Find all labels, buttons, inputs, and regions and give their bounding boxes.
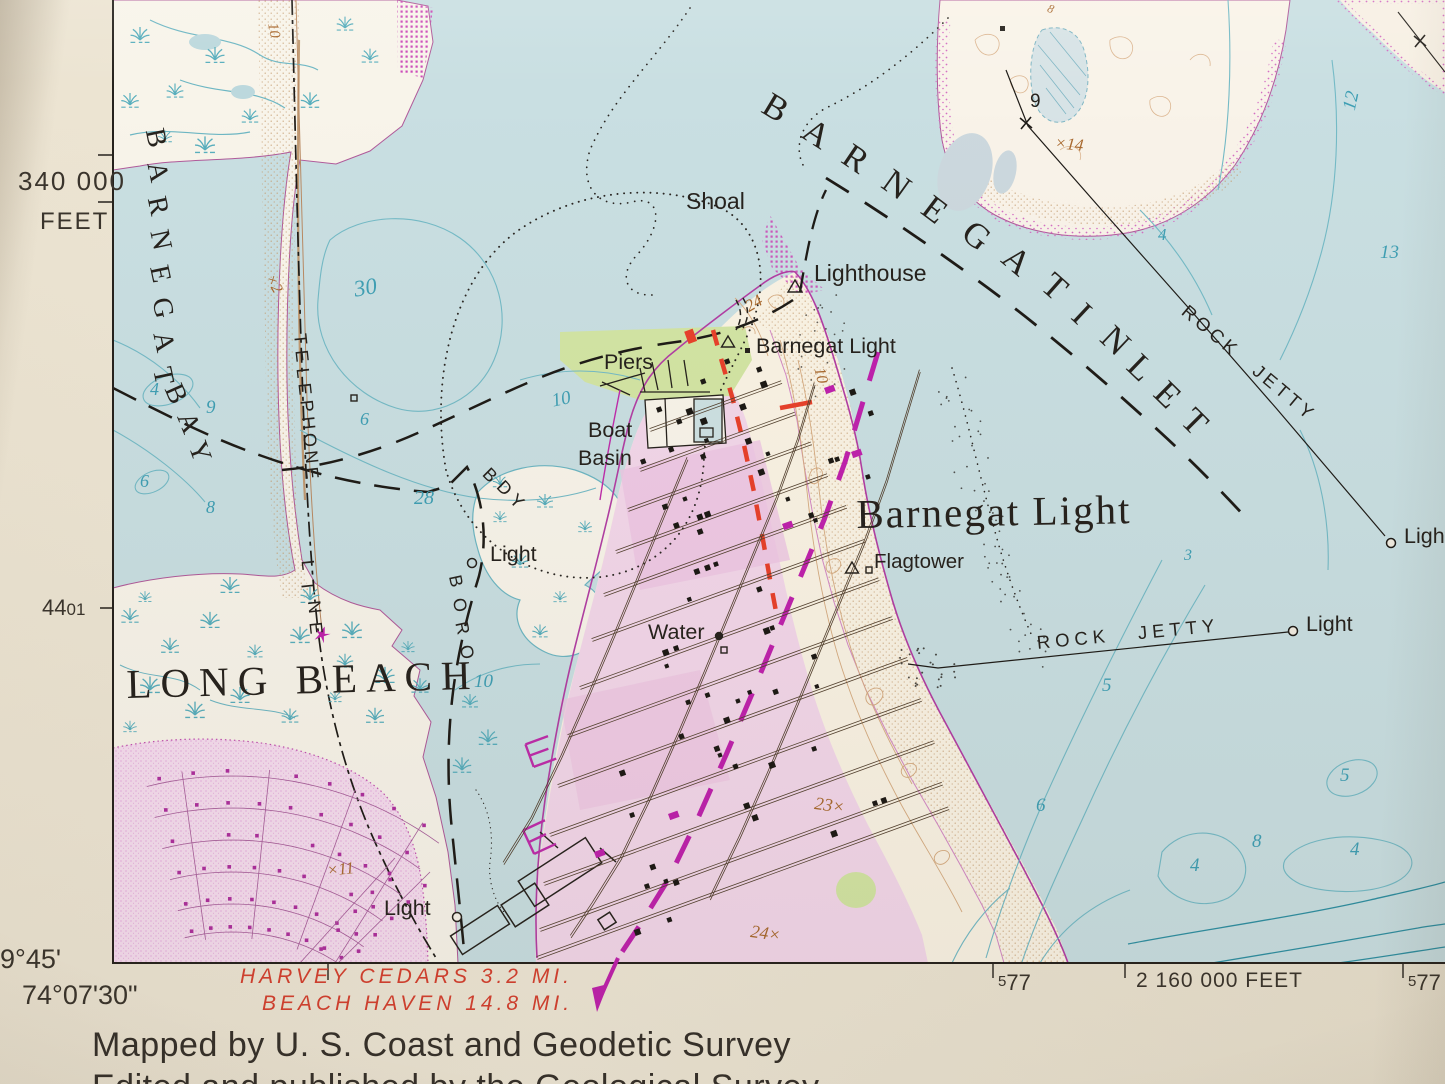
- depth-10a: 10: [550, 388, 573, 411]
- arc-letter: B: [140, 126, 171, 150]
- arc-letter: N: [876, 162, 917, 205]
- arc-letter: N: [302, 449, 321, 464]
- contour-24: 24: [742, 292, 765, 315]
- depth-3: 3: [1184, 548, 1192, 564]
- arc-letter: P: [297, 399, 316, 413]
- label-light-2: Light: [1306, 614, 1353, 636]
- label-barnegat-light-town: Barnegat Light: [856, 489, 1132, 535]
- depth-5b: 5: [1340, 766, 1350, 785]
- arc-letter: G: [956, 213, 998, 256]
- arc-letter: A: [996, 239, 1038, 282]
- longitude-label: 74°07'30": [22, 982, 138, 1009]
- arc-letter: I: [1066, 297, 1098, 331]
- arc-letter: A: [148, 329, 180, 355]
- depth-8b: 8: [1252, 832, 1262, 851]
- grid-feet-label: FEET: [40, 210, 109, 234]
- label-light-4: Light: [384, 898, 431, 920]
- label-long-beach: LONG BEACH: [126, 655, 480, 705]
- topo-map-photo: 340 000 FEET 4401 9°45' 74°07'30" 577 2 …: [0, 0, 1445, 1084]
- arc-letter: I: [299, 583, 317, 590]
- latitude-label: 9°45': [0, 946, 61, 973]
- arc-letter: N: [304, 600, 323, 615]
- depth-4b: 4: [1158, 226, 1167, 243]
- arc-letter: L: [293, 367, 312, 379]
- credit-line-1: Mapped by U. S. Coast and Geodetic Surve…: [92, 1028, 791, 1062]
- arc-letter: E: [1148, 375, 1188, 415]
- destination-line-1: HARVEY CEDARS 3.2 MI.: [240, 966, 573, 987]
- depth-28: 28: [414, 488, 434, 508]
- arc-letter: N: [1094, 319, 1136, 362]
- arc-letter: O: [456, 643, 477, 660]
- depth-30: 30: [352, 274, 379, 301]
- arc-letter: Y: [506, 490, 527, 511]
- contour-10: 10: [810, 366, 829, 385]
- depth-13: 13: [1380, 243, 1399, 262]
- label-shoal: Shoal: [686, 190, 745, 213]
- arc-letter: E: [296, 382, 315, 396]
- grid-577b-label: 577: [1408, 972, 1441, 994]
- label-jetty-9: 9: [1030, 92, 1041, 111]
- depth-12: 12: [1340, 89, 1363, 112]
- arc-letter: T: [1035, 266, 1074, 306]
- arc-letter: E: [144, 263, 175, 286]
- destination-line-2: BEACH HAVEN 14.8 MI.: [262, 993, 573, 1014]
- grid-2160000-label: 2 160 000 FEET: [1136, 970, 1303, 991]
- arc-letter: T: [1175, 402, 1215, 442]
- arc-letter: E: [916, 189, 954, 230]
- arc-letter: G: [146, 295, 178, 321]
- arc-letter: N: [144, 227, 176, 253]
- arc-letter: A: [142, 159, 174, 185]
- arc-letter: L: [299, 559, 318, 571]
- arc-letter: D: [493, 477, 515, 499]
- depth-4a: 4: [150, 380, 159, 398]
- label-rock-jetty-2: ROCK JETTY: [1036, 616, 1220, 652]
- arc-letter: R: [836, 137, 875, 179]
- arc-letter: B: [446, 573, 466, 588]
- arc-letter: O: [301, 432, 320, 448]
- arc-letter: B: [479, 464, 500, 485]
- arc-letter: R: [453, 620, 473, 636]
- arc-letter: Y: [183, 438, 216, 467]
- label-boat: Boat: [588, 420, 632, 442]
- map-labels: 340 000 FEET 4401 9°45' 74°07'30" 577 2 …: [0, 0, 1445, 1084]
- grid-577-label: 577: [998, 972, 1031, 994]
- elev-24: 24×: [749, 922, 781, 944]
- elev-14: ×14: [1054, 134, 1084, 154]
- label-light-3: Light: [1404, 526, 1445, 548]
- elev-2: ×2: [262, 272, 285, 296]
- depth-6c: 6: [1036, 796, 1046, 815]
- depth-10b: 10: [474, 672, 493, 691]
- arc-letter: H: [299, 416, 318, 431]
- arc-letter: E: [303, 466, 322, 480]
- arc-letter: A: [171, 408, 205, 437]
- arc-letter: L: [1121, 347, 1161, 387]
- arc-letter: E: [306, 621, 325, 635]
- elev-11: ×11: [326, 859, 355, 879]
- contour-10b: 10: [264, 22, 281, 39]
- label-basin: Basin: [578, 448, 632, 470]
- label-flagtower: Flagtower: [874, 552, 964, 573]
- depth-9: 9: [206, 398, 216, 417]
- depth-6b: 6: [140, 472, 149, 490]
- label-lighthouse: Lighthouse: [814, 262, 927, 285]
- arc-letter: E: [293, 349, 312, 363]
- grid-340000-label: 340 000: [18, 168, 126, 194]
- arc-letter: T: [291, 333, 310, 346]
- depth-4c: 4: [1190, 856, 1200, 875]
- label-light-1: Light: [490, 544, 537, 566]
- label-water-tank: Water: [648, 622, 705, 644]
- elev-23: 23×: [813, 794, 845, 816]
- credit-line-2: Edited and published by the Geological S…: [92, 1070, 820, 1084]
- grid-4401-label: 4401: [42, 597, 85, 619]
- arc-letter: R: [142, 194, 173, 218]
- arc-letter: O: [450, 596, 471, 613]
- contour-8: 8: [1046, 2, 1056, 15]
- arc-letter: B: [757, 86, 795, 128]
- depth-4d: 4: [1350, 840, 1360, 859]
- depth-6a: 6: [360, 410, 369, 428]
- arc-letter: A: [797, 111, 837, 154]
- depth-8a: 8: [206, 498, 215, 516]
- label-piers: Piers: [604, 352, 653, 374]
- depth-5a: 5: [1102, 676, 1112, 695]
- label-barnegat-light-station: Barnegat Light: [756, 336, 896, 358]
